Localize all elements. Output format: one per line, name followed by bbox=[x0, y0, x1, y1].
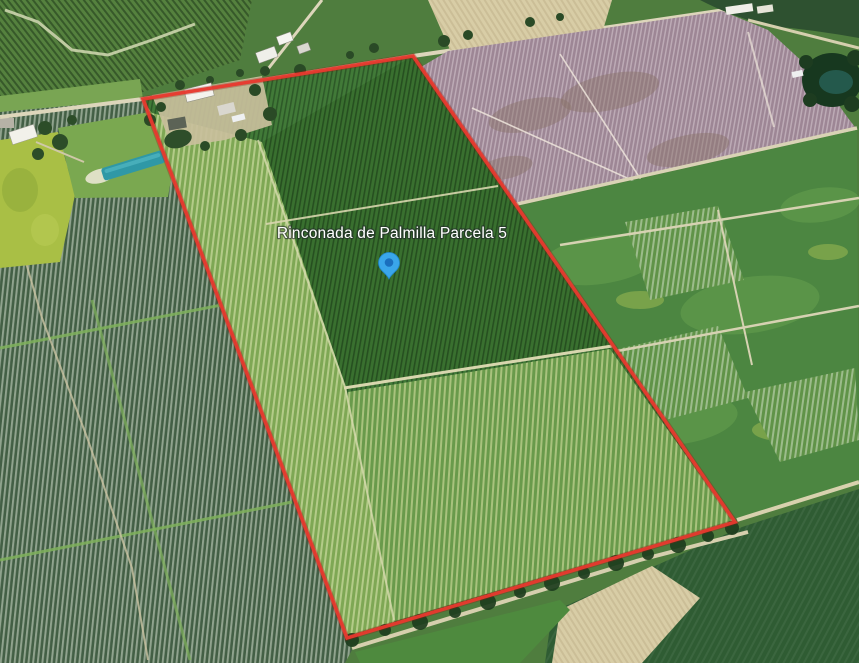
satellite-map[interactable]: Rinconada de Palmilla Parcela 5 bbox=[0, 0, 859, 663]
location-pin-dot bbox=[385, 258, 394, 267]
map-canvas[interactable]: Rinconada de Palmilla Parcela 5 bbox=[0, 0, 859, 663]
parcel-label: Rinconada de Palmilla Parcela 5 bbox=[277, 225, 507, 242]
parcel-label-group: Rinconada de Palmilla Parcela 5 bbox=[277, 225, 507, 242]
